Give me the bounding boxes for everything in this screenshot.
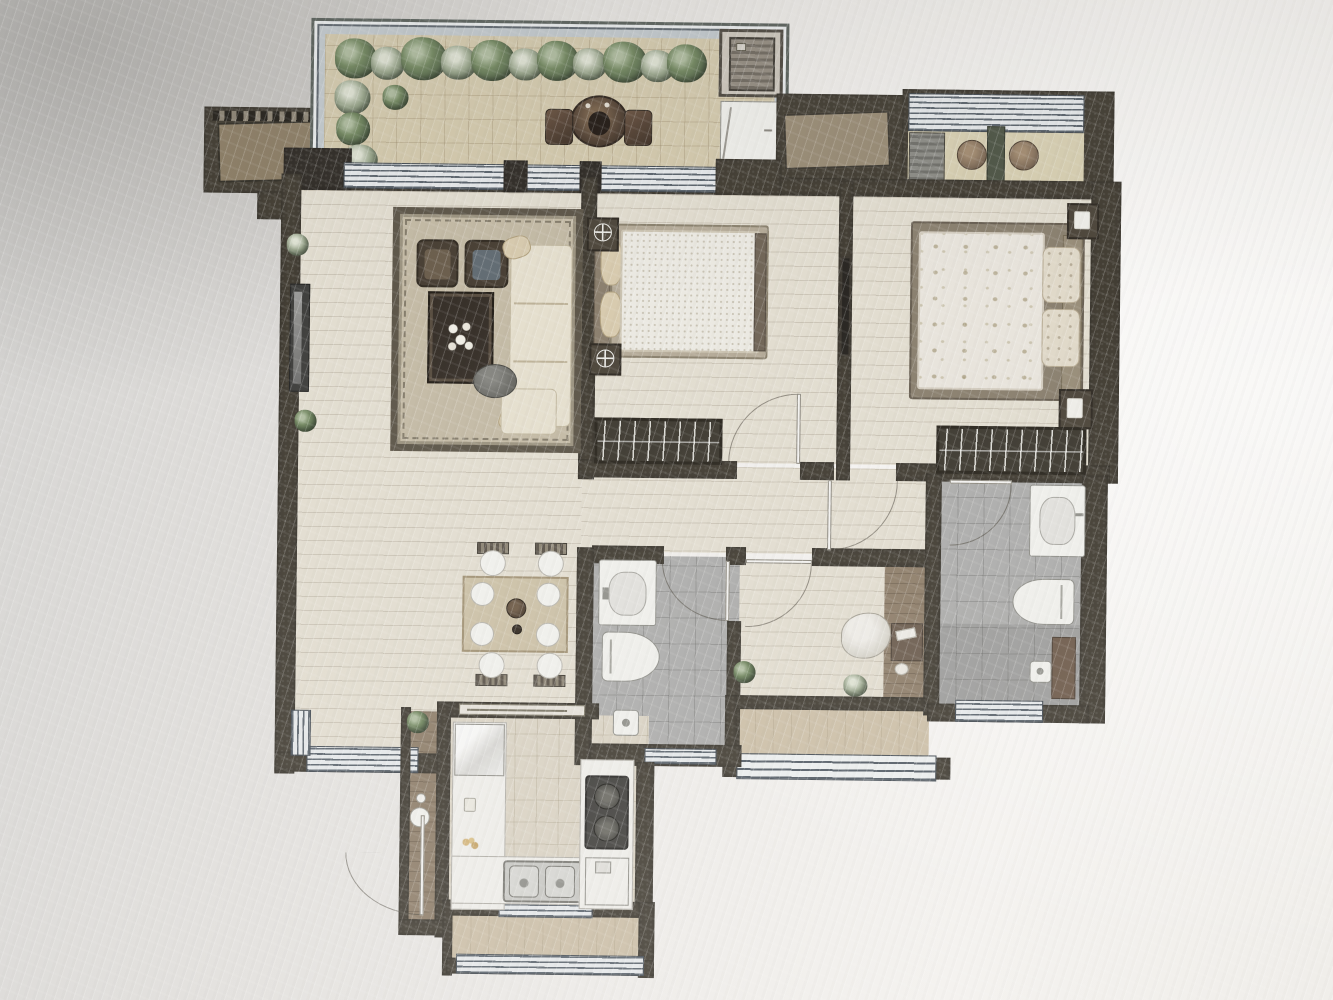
plant (843, 674, 867, 696)
tufted-pillow (1041, 309, 1080, 367)
tea-table-dot (585, 103, 590, 108)
plant (407, 711, 429, 733)
armchair-cushion (424, 249, 450, 279)
study-balcony-divider (732, 695, 925, 711)
washbasin-bowl (608, 572, 647, 616)
balcony-stool (1009, 140, 1039, 170)
ac-unit-knob (736, 43, 746, 51)
coffee-table-flowers (441, 315, 480, 359)
door-leaf (746, 559, 812, 564)
washbasin-bowl (1039, 497, 1076, 545)
hedge-bush (336, 112, 370, 145)
plant (733, 661, 755, 683)
hedge-bush (371, 47, 405, 80)
sofa-chaise (500, 388, 557, 435)
nightstand-lamp-icon (1067, 398, 1083, 418)
left-wall-window (290, 710, 311, 756)
entry-decor-small (416, 793, 426, 803)
armchair-cushion (472, 250, 500, 280)
tufted-pillow (1042, 247, 1081, 303)
hedge-bush (382, 85, 408, 110)
top-platform-panel (783, 111, 891, 170)
nightstand-lamp-icon (596, 349, 614, 367)
door-leaf (950, 480, 1012, 485)
dining-chair (478, 652, 504, 678)
toilet (1012, 578, 1075, 625)
sink-basin (509, 865, 539, 897)
planter-pot (545, 109, 573, 145)
master-bath-window (955, 700, 1043, 723)
hall-top-wall (800, 462, 834, 480)
vanity-strip (1051, 637, 1076, 699)
bed-foot-runner (753, 233, 766, 351)
sink-basin (545, 866, 575, 898)
place-setting (536, 583, 560, 607)
toilet-tank-line (610, 640, 612, 674)
bed-mattress-knit (619, 230, 760, 354)
window-mullion (503, 160, 527, 192)
dining-chair (538, 551, 564, 577)
counter-item-soap (464, 798, 476, 812)
counter-item-food (459, 836, 481, 852)
cooktop-burner (594, 783, 620, 809)
balcony-cabinet-handle (764, 129, 772, 131)
teapot (506, 598, 526, 618)
toilet-tank-line (1060, 585, 1062, 619)
window-end-wall (715, 159, 781, 196)
nightstand-lamp-icon (1074, 211, 1090, 229)
hall-bottom-wall (812, 548, 929, 567)
door-leaf (725, 561, 730, 621)
base-cabinet-notch (595, 861, 611, 873)
shower-drain-dot (622, 719, 630, 727)
shower-drain-dot (1037, 668, 1044, 675)
floor-plan-photo (0, 0, 1333, 1000)
door-leaf (796, 394, 801, 464)
wardrobe-hangers (936, 425, 1087, 475)
plant (294, 410, 316, 432)
place-setting (536, 623, 560, 647)
dining-chair (536, 653, 562, 679)
wardrobe-hangers (594, 417, 723, 465)
desk-cushion (895, 663, 909, 675)
rear-balcony-window (736, 753, 936, 781)
bath-window (644, 748, 716, 765)
place-setting (470, 582, 494, 606)
hedge-bush (334, 80, 370, 114)
dining-bath-wall (574, 547, 594, 765)
tv-niche (839, 256, 851, 356)
place-setting (470, 622, 494, 646)
washbasin-tap (1075, 513, 1083, 516)
refrigerator (454, 724, 505, 777)
planter-pot (624, 110, 652, 146)
study-right-wall (923, 473, 942, 715)
balcony-window-band (343, 162, 721, 193)
nightstand-lamp-icon (594, 223, 612, 241)
door-leaf (827, 480, 832, 550)
teacup (512, 624, 522, 634)
floor-plan (0, 0, 1333, 1000)
cooktop-burner (593, 815, 619, 841)
ottoman (473, 364, 517, 399)
hedge-bush (667, 44, 707, 82)
dining-chair (480, 550, 506, 576)
washbasin-tap (602, 587, 608, 599)
entry-door-arc (345, 852, 424, 915)
bed-mattress-floral (917, 231, 1045, 391)
service-balcony-window (456, 954, 644, 976)
plant (287, 234, 309, 256)
wall-tv-screen (293, 292, 302, 384)
tea-table-dot (604, 102, 609, 107)
kitchen-right-wall (635, 762, 655, 912)
